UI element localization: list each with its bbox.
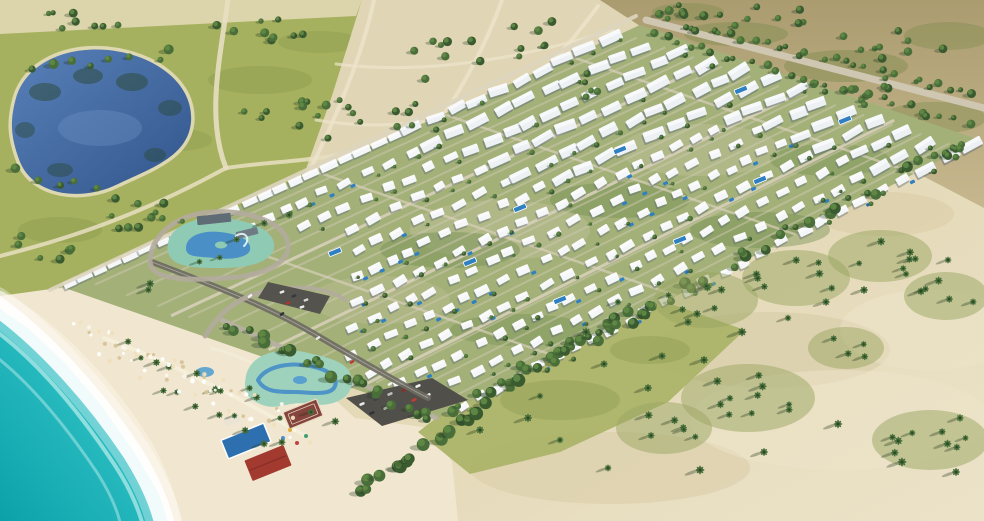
resort-aerial-rendering <box>0 0 984 521</box>
aerial-scene-svg <box>0 0 984 521</box>
